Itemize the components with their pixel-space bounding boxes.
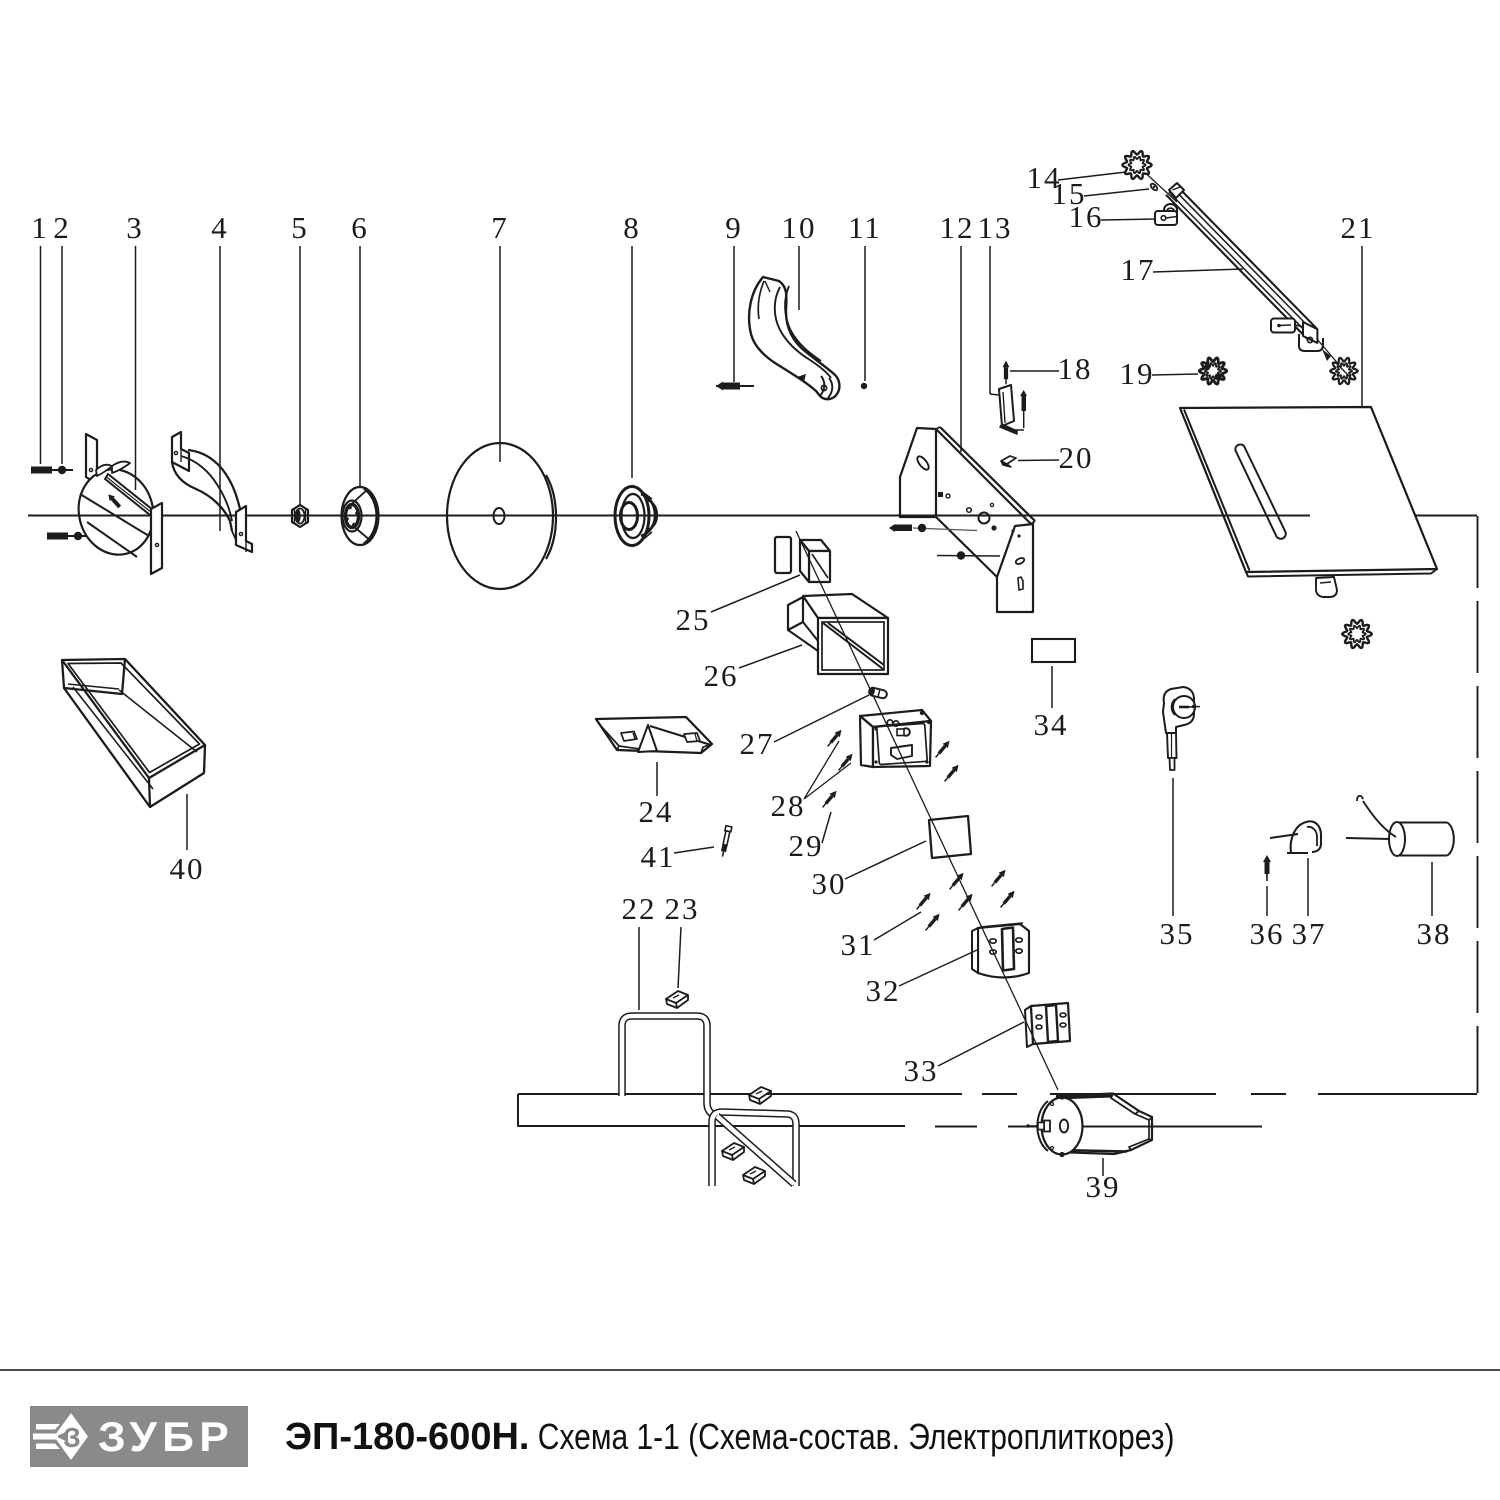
svg-text:30: 30: [812, 866, 847, 901]
svg-text:25: 25: [676, 602, 711, 637]
svg-text:20: 20: [1059, 440, 1094, 475]
svg-text:32: 32: [866, 973, 901, 1008]
svg-text:13: 13: [978, 210, 1013, 245]
svg-text:4: 4: [211, 210, 229, 245]
svg-text:18: 18: [1058, 351, 1093, 386]
svg-text:37: 37: [1292, 916, 1327, 951]
svg-text:7: 7: [491, 210, 509, 245]
svg-text:21: 21: [1341, 210, 1376, 245]
svg-text:17: 17: [1121, 252, 1156, 287]
svg-text:41: 41: [641, 839, 676, 874]
svg-text:38: 38: [1417, 916, 1452, 951]
svg-text:9: 9: [725, 210, 743, 245]
svg-text:22: 22: [622, 891, 657, 926]
svg-text:ЭП-180-600Н. Схема 1-1 (Схема-: ЭП-180-600Н. Схема 1-1 (Схема-состав. Эл…: [285, 1416, 1174, 1458]
svg-text:27: 27: [740, 726, 775, 761]
svg-text:34: 34: [1034, 707, 1069, 742]
svg-text:29: 29: [789, 828, 824, 863]
svg-text:39: 39: [1086, 1169, 1121, 1204]
svg-text:ЗУБР: ЗУБР: [98, 1413, 234, 1460]
svg-text:24: 24: [639, 794, 674, 829]
svg-text:35: 35: [1160, 916, 1195, 951]
svg-text:2: 2: [53, 210, 71, 245]
svg-text:6: 6: [351, 210, 369, 245]
svg-text:28: 28: [771, 788, 806, 823]
svg-text:8: 8: [623, 210, 641, 245]
svg-text:33: 33: [904, 1053, 939, 1088]
svg-text:5: 5: [291, 210, 309, 245]
svg-text:23: 23: [665, 891, 700, 926]
svg-text:26: 26: [704, 658, 739, 693]
svg-text:19: 19: [1120, 356, 1155, 391]
svg-text:12: 12: [940, 210, 975, 245]
svg-text:11: 11: [848, 210, 882, 245]
svg-text:3: 3: [126, 210, 144, 245]
svg-text:31: 31: [841, 927, 876, 962]
svg-text:10: 10: [782, 210, 817, 245]
svg-text:36: 36: [1250, 916, 1285, 951]
svg-text:1: 1: [31, 210, 49, 245]
svg-text:16: 16: [1069, 199, 1104, 234]
svg-text:40: 40: [170, 851, 205, 886]
